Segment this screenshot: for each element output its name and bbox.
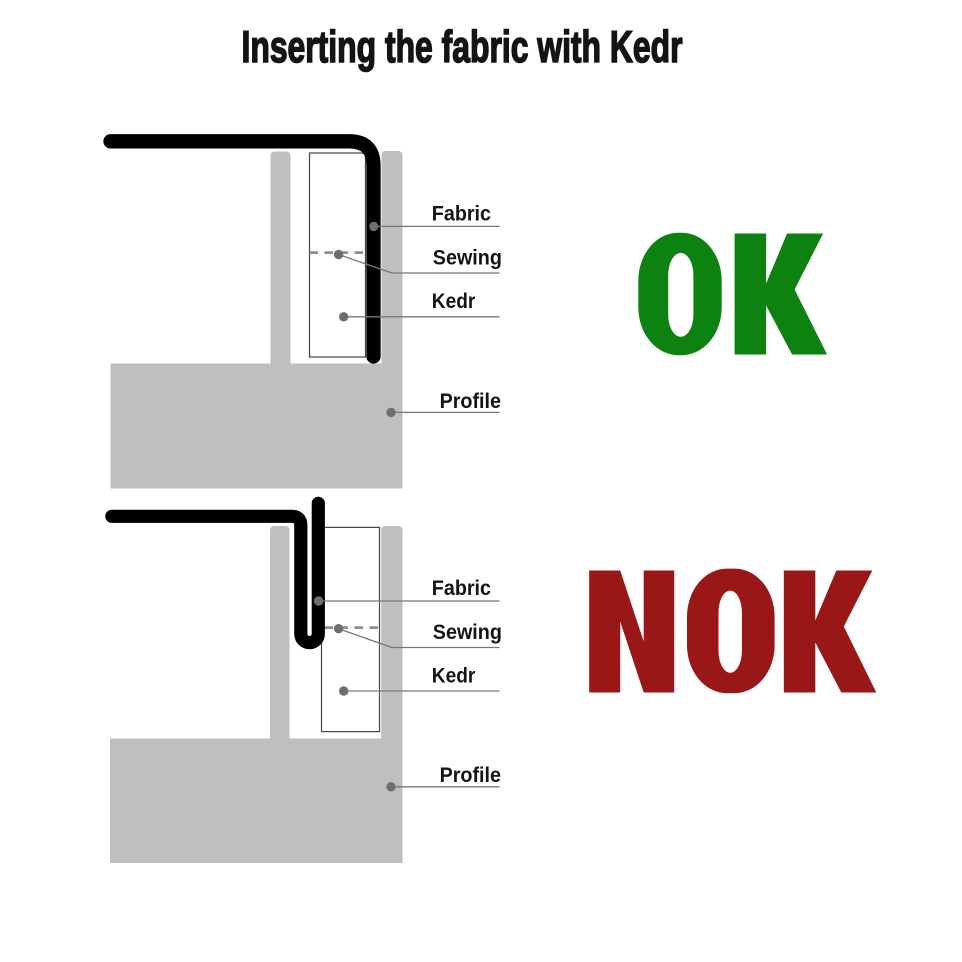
svg-text:Sewing: Sewing bbox=[433, 620, 502, 644]
svg-text:Kedr: Kedr bbox=[432, 663, 476, 687]
svg-text:Kedr: Kedr bbox=[432, 289, 476, 313]
svg-text:Sewing: Sewing bbox=[433, 246, 502, 270]
svg-text:Fabric: Fabric bbox=[432, 202, 491, 226]
svg-text:Profile: Profile bbox=[440, 389, 501, 413]
svg-text:Inserting the fabric with Kedr: Inserting the fabric with Kedr bbox=[242, 21, 683, 72]
svg-text:Profile: Profile bbox=[440, 763, 501, 787]
svg-text:Fabric: Fabric bbox=[432, 576, 491, 600]
